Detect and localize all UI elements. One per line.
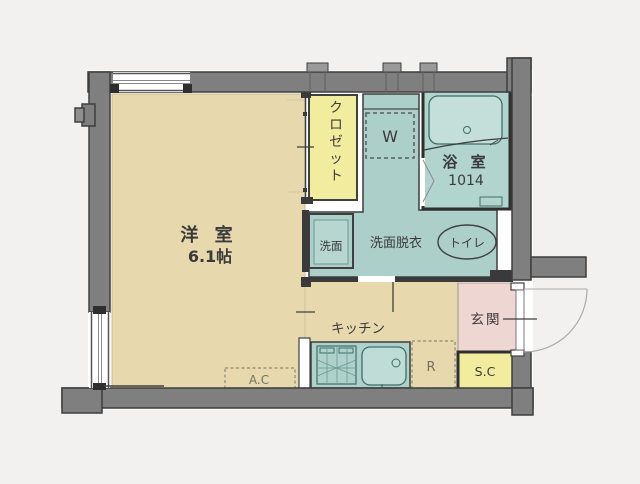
wall-bottom-right-step (512, 388, 533, 415)
entrance-label: 玄関 (471, 311, 502, 328)
wall-bottom (62, 388, 533, 408)
kitchen-label: キッチン (331, 321, 385, 337)
floor-plan: 洋 室 6.1帖 クロゼット W 浴 室 1014 洗面 洗面脱衣 トイレ キッ… (0, 0, 640, 484)
sliding-door-panel (299, 338, 310, 388)
floor-plan-canvas: 洋 室 6.1帖 クロゼット W 浴 室 1014 洗面 洗面脱衣 トイレ キッ… (0, 0, 640, 484)
wall-right (512, 58, 531, 280)
window-top (110, 72, 192, 93)
washroom-label: 洗面脱衣 (370, 235, 422, 251)
refrigerator-label: R (426, 360, 435, 375)
wall-bottom-left-step (62, 388, 102, 413)
bathroom-label: 浴 室 (442, 153, 489, 171)
door-leaf (516, 290, 524, 350)
bathroom-size: 1014 (448, 173, 484, 189)
washbasin-label: 洗面 (320, 239, 343, 253)
kitchen-counter (311, 342, 410, 389)
bathroom-room (420, 90, 510, 209)
washer-space-label: W (382, 127, 398, 146)
shoe-cabinet-label: S.C (475, 364, 496, 379)
bathtub (429, 96, 502, 144)
toilet-label: トイレ (449, 236, 485, 250)
sink-icon (362, 347, 406, 389)
western-room-label: 洋 室 (180, 224, 237, 246)
stove-icon (317, 346, 356, 384)
aircon-label: A.C (249, 373, 269, 387)
wall-right-protrusion (531, 257, 586, 277)
closet-room (297, 92, 357, 204)
wall-left-pipe-box (75, 108, 84, 122)
western-room-area: 6.1帖 (188, 247, 232, 266)
closet-label: クロゼット (329, 100, 343, 184)
